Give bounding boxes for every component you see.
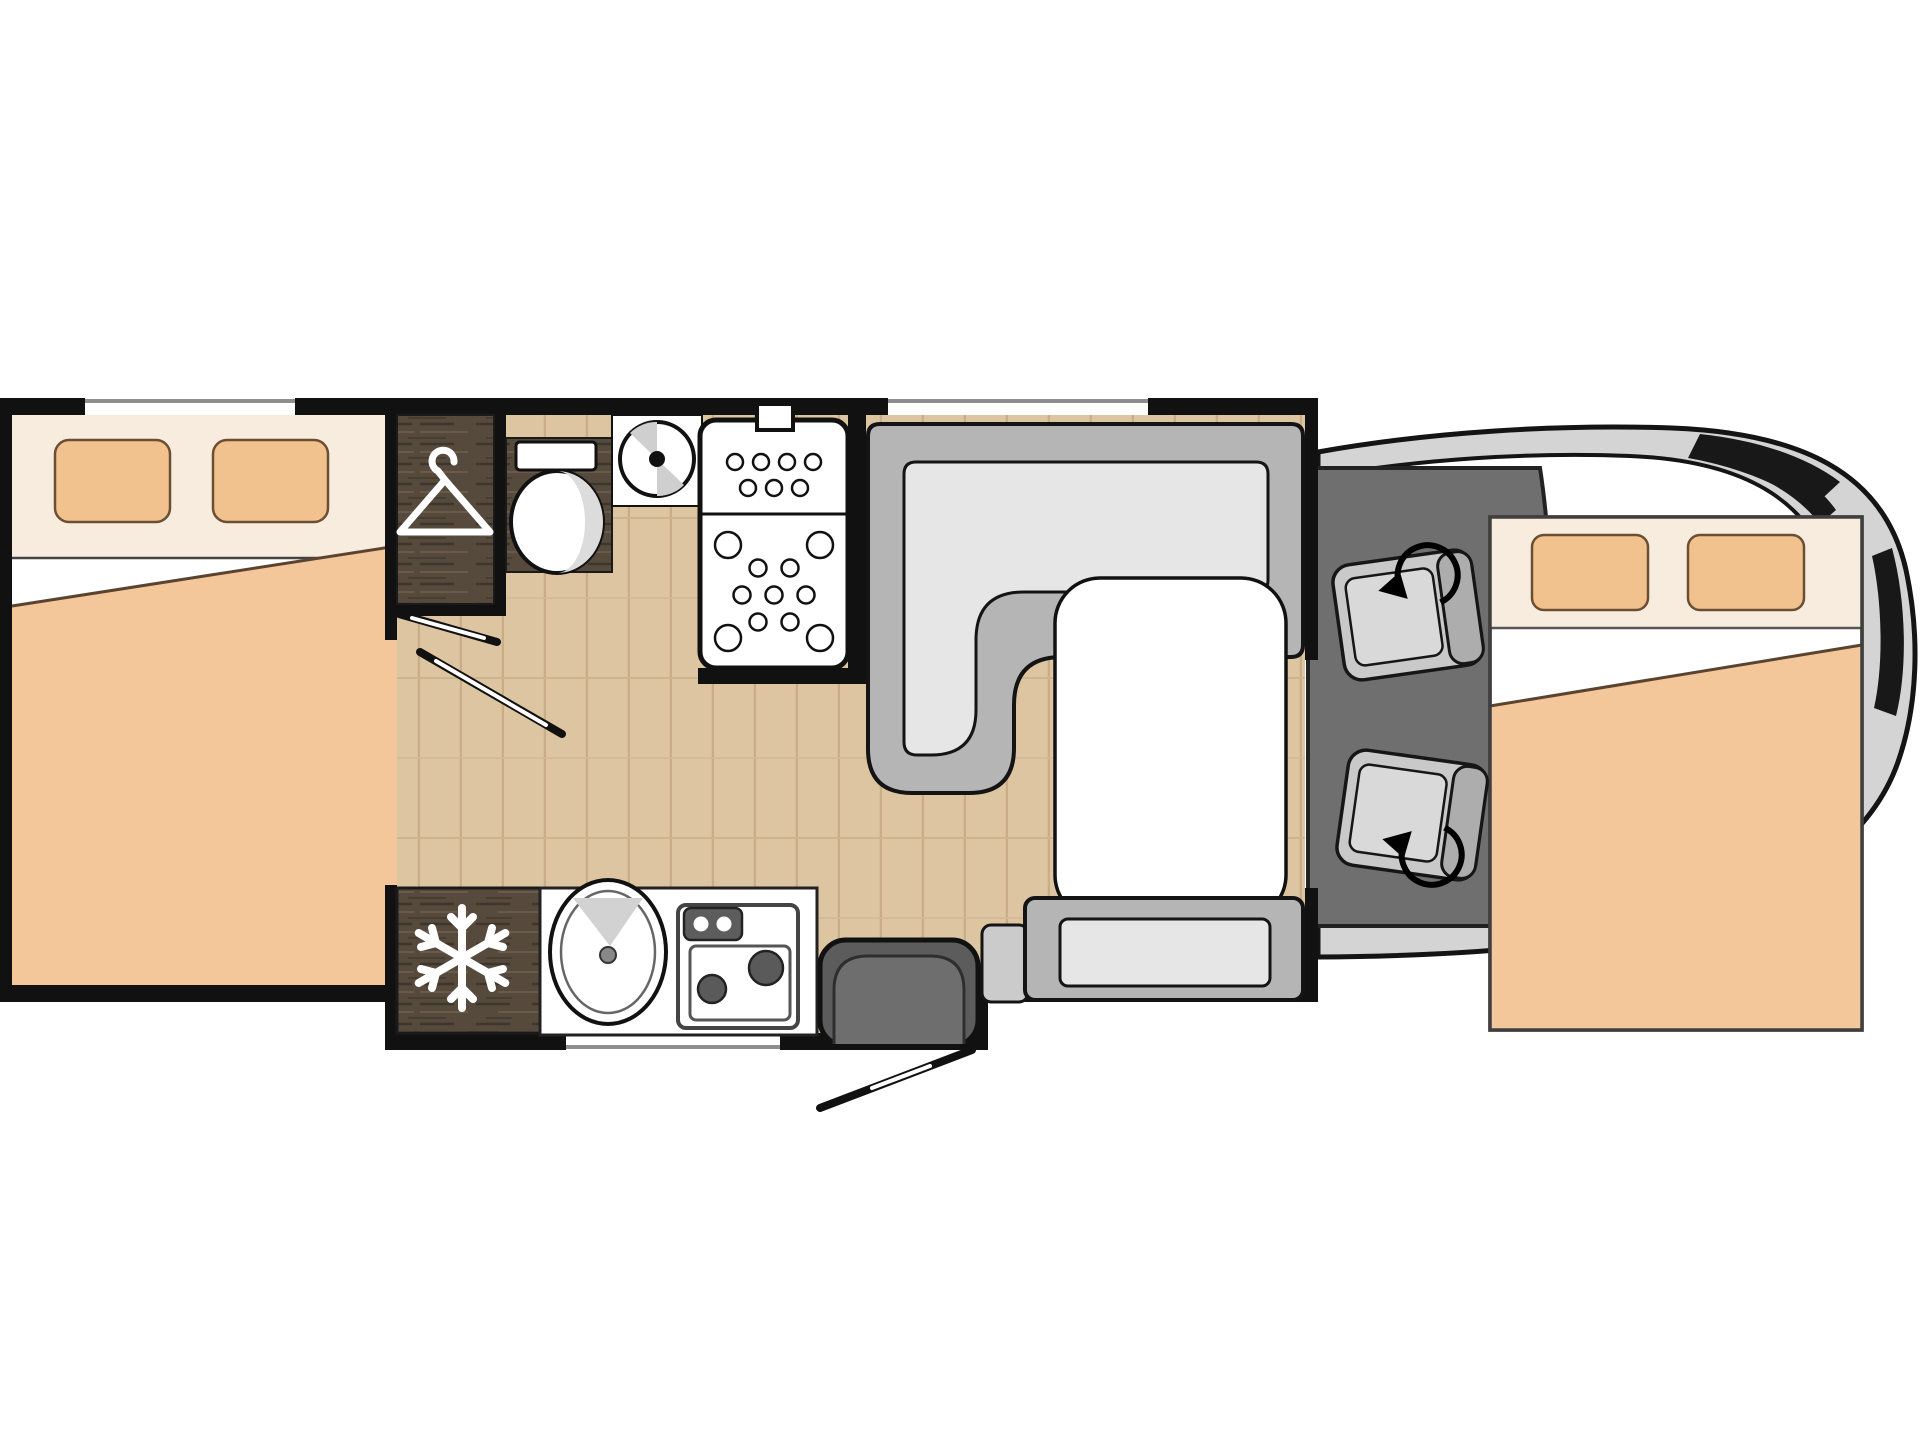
front-wall-upper [1305, 398, 1318, 660]
rear-bed-pillow-right [213, 440, 328, 522]
basin-tap [649, 451, 665, 467]
toilet-cistern [516, 442, 596, 470]
rear-wall [0, 398, 12, 1002]
kitchen-sink [550, 880, 666, 1024]
shower-wall-right [848, 398, 866, 684]
rear-bed-pillow-left [55, 440, 170, 522]
hob [678, 905, 798, 1028]
entry-door [820, 940, 978, 1108]
bedroom-partition-upper [385, 398, 397, 640]
page: { "meta": { "type": "motorhome-floorplan… [0, 0, 1920, 1440]
sink-drain [600, 947, 616, 963]
washbasin [620, 422, 694, 496]
rear-bed-duvet [12, 546, 397, 985]
burner-small [698, 975, 726, 1003]
refrigerator [397, 888, 540, 1033]
bench-seat [982, 898, 1303, 1002]
bathroom-wall-left [494, 398, 506, 616]
front-wall-lower [1305, 888, 1318, 1002]
dinette-window [888, 398, 1148, 415]
front-bed-duvet [1490, 645, 1862, 1030]
front-bed-pillow-right [1688, 535, 1804, 610]
burner-large [749, 951, 783, 985]
front-bed-pillow-left [1532, 535, 1648, 610]
wardrobe [397, 415, 494, 604]
rear-bedroom [12, 415, 397, 985]
front-bed [1490, 517, 1862, 1030]
shower-drain-cover [757, 404, 793, 430]
entry-door-swing [820, 1050, 972, 1108]
bedroom-partition-lower [385, 885, 397, 1050]
bedroom-window [85, 398, 295, 415]
dinette-table [1055, 578, 1286, 920]
shower [700, 404, 848, 668]
kitchen-block [540, 880, 817, 1035]
floorplan-canvas [0, 0, 1920, 1440]
hob-control-panel [684, 908, 742, 940]
